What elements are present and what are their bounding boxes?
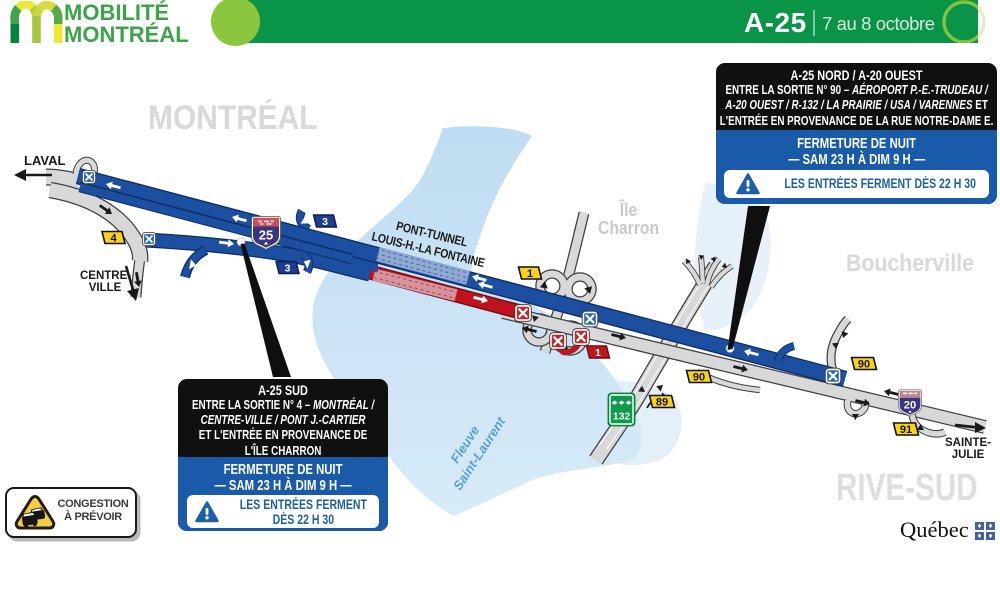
svg-text:3: 3 [322,216,328,228]
svg-text:3: 3 [285,263,291,275]
svg-text:90: 90 [693,372,705,384]
svg-text:1: 1 [527,268,533,280]
svg-text:89: 89 [656,397,668,409]
svg-text:25: 25 [259,228,273,243]
svg-text:20: 20 [904,400,916,412]
svg-text:91: 91 [900,424,912,436]
svg-text:90: 90 [858,359,870,371]
svg-text:1: 1 [595,347,601,359]
svg-text:4: 4 [110,233,117,245]
svg-text:132: 132 [613,411,631,423]
